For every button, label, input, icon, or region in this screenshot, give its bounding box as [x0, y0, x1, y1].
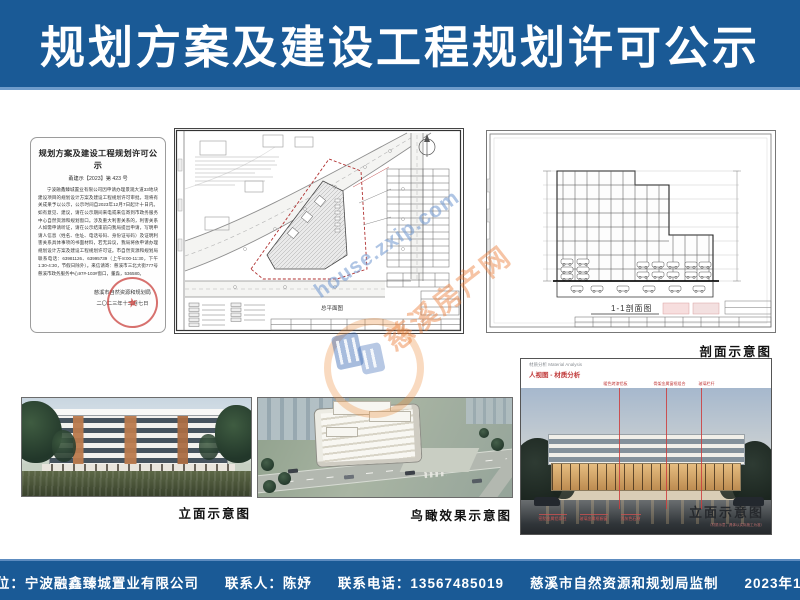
site-plan-svg: 总平面图	[175, 129, 462, 332]
top-banner: 规划方案及建设工程规划许可公示	[0, 0, 800, 90]
callout-line	[666, 388, 667, 509]
elevation-grass	[22, 471, 251, 496]
roof-terrace	[327, 428, 357, 436]
material-label: 玻璃栏杆	[699, 381, 715, 387]
doc-title: 规划方案及建设工程规划许可公示	[38, 147, 158, 171]
section-label: 1-1剖面图	[611, 303, 653, 313]
tree	[491, 438, 504, 451]
material-label: 暖色烤漆铝板	[604, 381, 628, 387]
material-label: 密肋金属铝条柱	[539, 514, 567, 522]
material-header: 人视图 - 材质分析	[529, 369, 580, 379]
elevation-rendering	[22, 398, 251, 496]
section-drawing: 1-1剖面图	[486, 130, 776, 333]
background-buildings	[466, 398, 512, 424]
tree	[199, 434, 219, 460]
car	[534, 497, 560, 506]
material-bottom-labels: 密肋金属铝条柱 玻璃金属框橱窗 浅灰色石材	[539, 514, 641, 522]
doc-number: 甬建示【2023】第 423 号	[38, 175, 158, 182]
callout-line	[701, 388, 702, 509]
elevation-caption: 立面示意图	[22, 503, 251, 522]
material-label: 浅灰色石材	[621, 514, 641, 522]
material-label: 骨架金属窗框组合	[654, 381, 686, 387]
dusk-building	[549, 435, 744, 490]
site-plan-drawing: 总平面图	[174, 128, 464, 334]
aerial-caption: 鸟瞰效果示意图	[258, 505, 512, 524]
footer-authority: 慈溪市自然资源和规划局监制	[530, 572, 719, 592]
dusk-rendering: 密肋金属铝条柱 玻璃金属框橱窗 浅灰色石材 立面示意图 （材质示意，具体以实际施…	[521, 388, 771, 534]
tree	[215, 405, 251, 463]
material-analysis-panel: 材质分析 Material Analysis 人视图 - 材质分析 暖色烤漆铝板…	[520, 358, 772, 535]
tree	[261, 458, 274, 471]
doc-body-text: 宁波融鑫臻城置业有限公司因申请办理景观大道33地块建设项目的规划设计方案及建设工…	[38, 186, 158, 278]
material-label: 玻璃金属框橱窗	[580, 514, 608, 522]
material-header-en: 材质分析 Material Analysis	[529, 362, 582, 368]
footer-phone: 联系电话：13567485019	[338, 572, 504, 592]
material-caption: 立面示意图	[689, 502, 764, 521]
tree	[52, 430, 76, 462]
notice-document: 规划方案及建设工程规划许可公示 甬建示【2023】第 423 号 宁波融鑫臻城置…	[30, 137, 166, 333]
site-plan-label: 总平面图	[321, 304, 344, 312]
footer-developer: 建设单位：宁波融鑫臻城置业有限公司	[0, 572, 199, 592]
storefront-mullions	[552, 464, 739, 491]
roof-terrace	[370, 412, 411, 421]
poster-title: 规划方案及建设工程规划许可公示	[40, 11, 760, 76]
material-caption-sub: （材质示意，具体以实际施工为准）	[708, 523, 764, 528]
footer-contact: 联系人：陈妤	[225, 572, 312, 592]
official-stamp-icon	[102, 272, 162, 332]
aerial-rendering	[258, 398, 512, 497]
tree	[263, 480, 276, 493]
footer-date: 2023年12月7日	[745, 572, 800, 592]
car	[471, 479, 481, 484]
watermark-logo-icon	[331, 332, 364, 371]
tree	[479, 428, 489, 438]
site-legend	[189, 303, 265, 326]
watermark-logo-icon	[357, 342, 386, 375]
planning-notice-poster: 规划方案及建设工程规划许可公示 house.zxip.com 慈溪房产网 规划方…	[0, 0, 800, 600]
bottom-banner: 建设单位：宁波融鑫臻城置业有限公司 联系人：陈妤 联系电话：1356748501…	[0, 559, 800, 600]
callout-line	[619, 388, 620, 509]
section-svg: 1-1剖面图	[487, 131, 774, 331]
site-notes	[195, 157, 279, 185]
